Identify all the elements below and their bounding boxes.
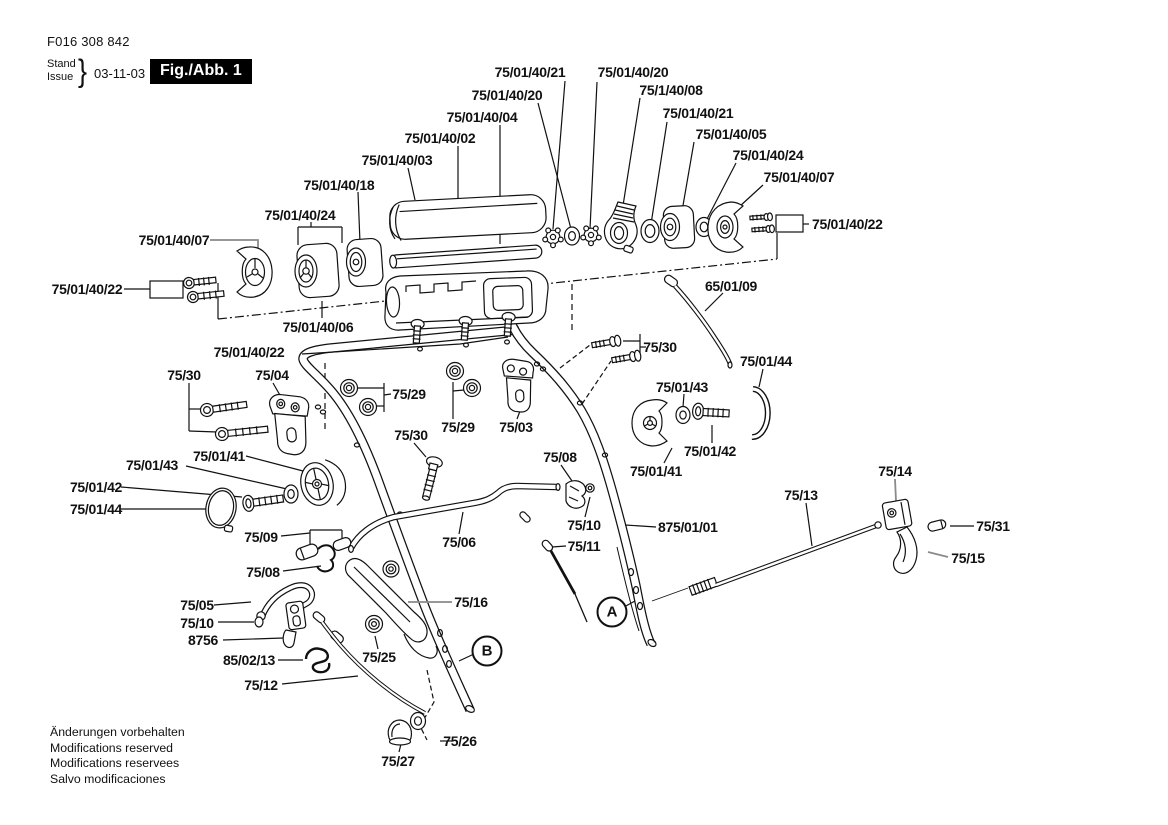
parts-diagram-page: F016 308 842 Stand Issue } 03-11-03 Fig.… bbox=[0, 0, 1168, 825]
modifications-notice: Änderungen vorbehaltenModifications rese… bbox=[50, 725, 185, 787]
view-markers-layer: AB bbox=[0, 0, 1168, 825]
footer-line: Salvo modificaciones bbox=[50, 772, 185, 788]
footer-line: Modifications reserved bbox=[50, 741, 185, 757]
footer-line: Modifications reservees bbox=[50, 756, 185, 772]
view-marker-b: B bbox=[472, 636, 503, 667]
footer-line: Änderungen vorbehalten bbox=[50, 725, 185, 741]
view-marker-a: A bbox=[597, 597, 628, 628]
